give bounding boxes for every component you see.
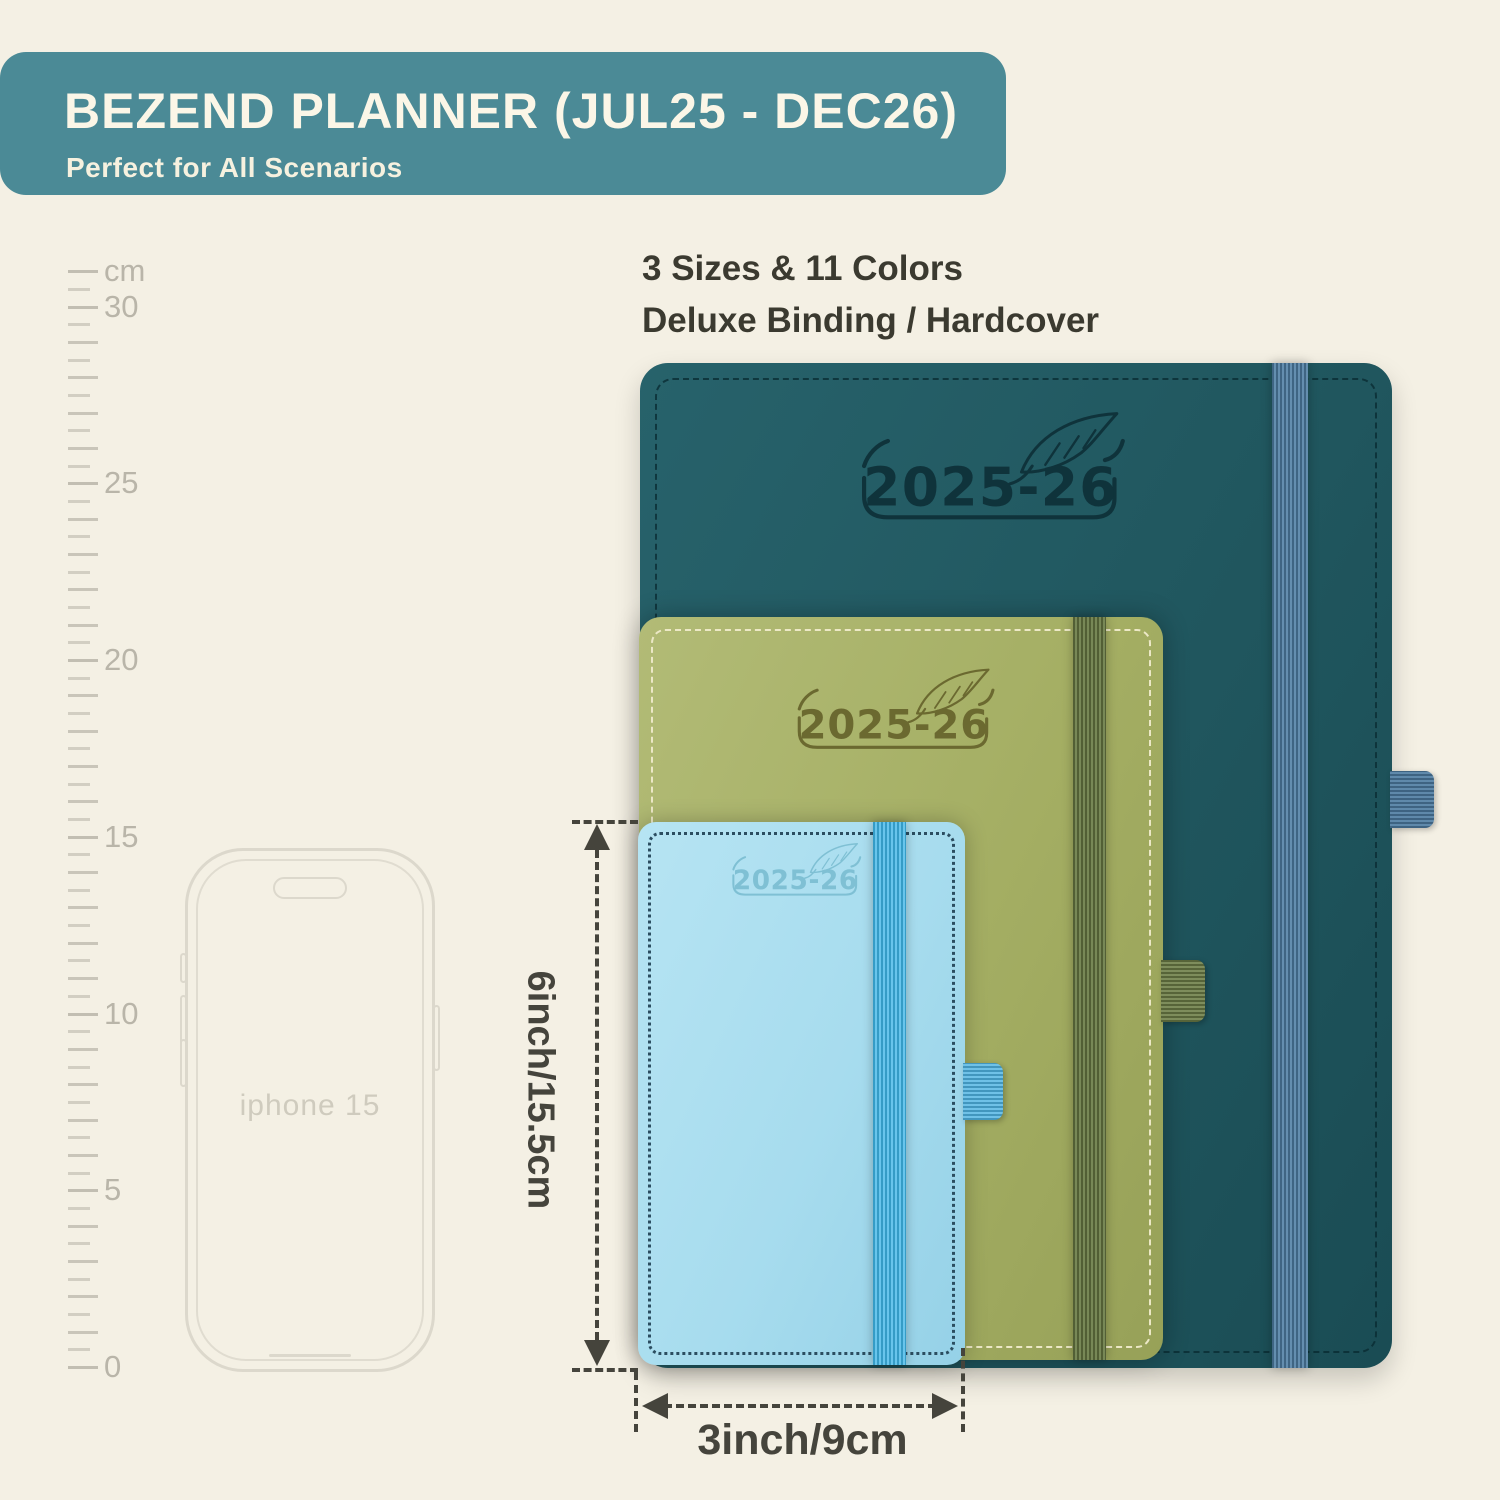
year-text: 2025-26 xyxy=(733,866,858,896)
ruler-tick xyxy=(68,730,98,733)
ruler-tick xyxy=(68,447,98,450)
ruler-tick xyxy=(68,747,90,750)
elastic-band xyxy=(1272,363,1308,1368)
ruler-label: cm xyxy=(104,255,145,287)
dimension-line xyxy=(595,850,599,1340)
ruler-tick xyxy=(68,677,90,680)
ruler-tick xyxy=(68,871,98,874)
ruler-tick xyxy=(68,1101,90,1104)
ruler-tick xyxy=(68,1154,98,1157)
dimension-extension-line xyxy=(961,1348,965,1432)
ruler-tick xyxy=(68,465,90,468)
year-logo: 2025-26 xyxy=(845,410,1155,544)
ruler-tick xyxy=(68,800,98,803)
ruler-tick xyxy=(68,1172,90,1175)
ruler-tick xyxy=(68,1242,90,1245)
ruler-tick xyxy=(68,1030,90,1033)
ruler-tick xyxy=(68,323,90,326)
ruler-tick xyxy=(68,500,90,503)
ruler-tick xyxy=(68,889,90,892)
mute-switch xyxy=(180,953,187,983)
ruler-tick xyxy=(68,1013,98,1016)
dimension-line xyxy=(664,1404,936,1408)
dynamic-island xyxy=(273,877,347,899)
power-button xyxy=(433,1005,440,1071)
volume-down-button xyxy=(180,1039,187,1087)
ruler-tick xyxy=(68,1066,90,1069)
elastic-band xyxy=(873,822,906,1365)
dimension-extension-line xyxy=(634,1372,638,1432)
ruler-tick xyxy=(68,1136,90,1139)
ruler-tick xyxy=(68,853,90,856)
iphone-label: iphone 15 xyxy=(188,1089,432,1123)
elastic-band xyxy=(1073,617,1106,1360)
ruler-tick xyxy=(68,659,98,662)
ruler-tick xyxy=(68,1189,98,1192)
pen-loop xyxy=(963,1063,1003,1120)
ruler-tick xyxy=(68,1313,90,1316)
ruler-tick xyxy=(68,818,90,821)
ruler-tick xyxy=(68,1119,98,1122)
ruler-tick xyxy=(68,694,98,697)
iphone-outline: iphone 15 xyxy=(185,848,435,1372)
ruler-tick xyxy=(68,836,98,839)
ruler-tick xyxy=(68,1295,98,1298)
ruler-label: 15 xyxy=(104,821,138,853)
ruler-tick xyxy=(68,412,98,415)
ruler-label: 25 xyxy=(104,467,138,499)
ruler-tick xyxy=(68,1083,98,1086)
ruler-tick xyxy=(68,270,98,273)
ruler-tick xyxy=(68,959,90,962)
arrow-up-icon xyxy=(584,824,610,850)
ruler-tick xyxy=(68,1366,98,1369)
ruler-tick xyxy=(68,518,98,521)
year-logo: 2025-26 xyxy=(724,842,876,907)
year-text: 2025-26 xyxy=(863,455,1118,518)
ruler-label: 5 xyxy=(104,1174,121,1206)
ruler-tick xyxy=(68,394,90,397)
ruler-label: 20 xyxy=(104,644,138,676)
feature-line-binding: Deluxe Binding / Hardcover xyxy=(642,295,1099,347)
ruler-label: 0 xyxy=(104,1351,121,1383)
ruler-tick xyxy=(68,1278,90,1281)
banner: BEZEND PLANNER (JUL25 - DEC26) Perfect f… xyxy=(0,52,1006,195)
ruler-tick xyxy=(68,359,90,362)
ruler-tick xyxy=(68,977,98,980)
pen-loop xyxy=(1390,771,1434,828)
ruler-tick xyxy=(68,588,98,591)
year-logo: 2025-26 xyxy=(785,667,1017,767)
ruler-tick xyxy=(68,571,90,574)
year-text: 2025-26 xyxy=(799,702,990,748)
ruler-tick xyxy=(68,641,90,644)
ruler-tick xyxy=(68,765,98,768)
bottom-speaker xyxy=(269,1354,351,1357)
ruler-tick xyxy=(68,553,98,556)
banner-subtitle: Perfect for All Scenarios xyxy=(66,152,1006,184)
ruler-tick xyxy=(68,924,90,927)
stitching xyxy=(648,832,955,1355)
feature-text: 3 Sizes & 11 Colors Deluxe Binding / Har… xyxy=(642,243,1099,347)
ruler-tick xyxy=(68,995,90,998)
ruler-tick xyxy=(68,624,98,627)
ruler-tick xyxy=(68,712,90,715)
product-infographic: BEZEND PLANNER (JUL25 - DEC26) Perfect f… xyxy=(0,0,1500,1500)
ruler-tick xyxy=(68,429,90,432)
banner-title: BEZEND PLANNER (JUL25 - DEC26) xyxy=(64,82,1006,140)
dimension-extension-line xyxy=(572,1368,638,1372)
ruler-tick xyxy=(68,1048,98,1051)
width-label: 3inch/9cm xyxy=(645,1416,960,1465)
ruler-tick xyxy=(68,606,90,609)
ruler-tick xyxy=(68,288,90,291)
ruler-tick xyxy=(68,1207,90,1210)
ruler-label: 10 xyxy=(104,998,138,1030)
ruler-tick xyxy=(68,1225,98,1228)
pen-loop xyxy=(1161,960,1205,1022)
height-label: 6inch/15.5cm xyxy=(519,971,562,1210)
feature-line-sizes: 3 Sizes & 11 Colors xyxy=(642,243,1099,295)
ruler-label: 30 xyxy=(104,291,138,323)
ruler-tick xyxy=(68,783,90,786)
ruler-tick xyxy=(68,1260,98,1263)
ruler-tick xyxy=(68,341,98,344)
ruler-tick xyxy=(68,482,98,485)
ruler-tick xyxy=(68,1331,98,1334)
ruler-tick xyxy=(68,535,90,538)
arrow-down-icon xyxy=(584,1340,610,1366)
ruler-tick xyxy=(68,1348,90,1351)
ruler-tick xyxy=(68,376,98,379)
planner-small: 2025-26 xyxy=(638,822,965,1365)
ruler-tick xyxy=(68,906,98,909)
ruler-tick xyxy=(68,942,98,945)
ruler-tick xyxy=(68,306,98,309)
